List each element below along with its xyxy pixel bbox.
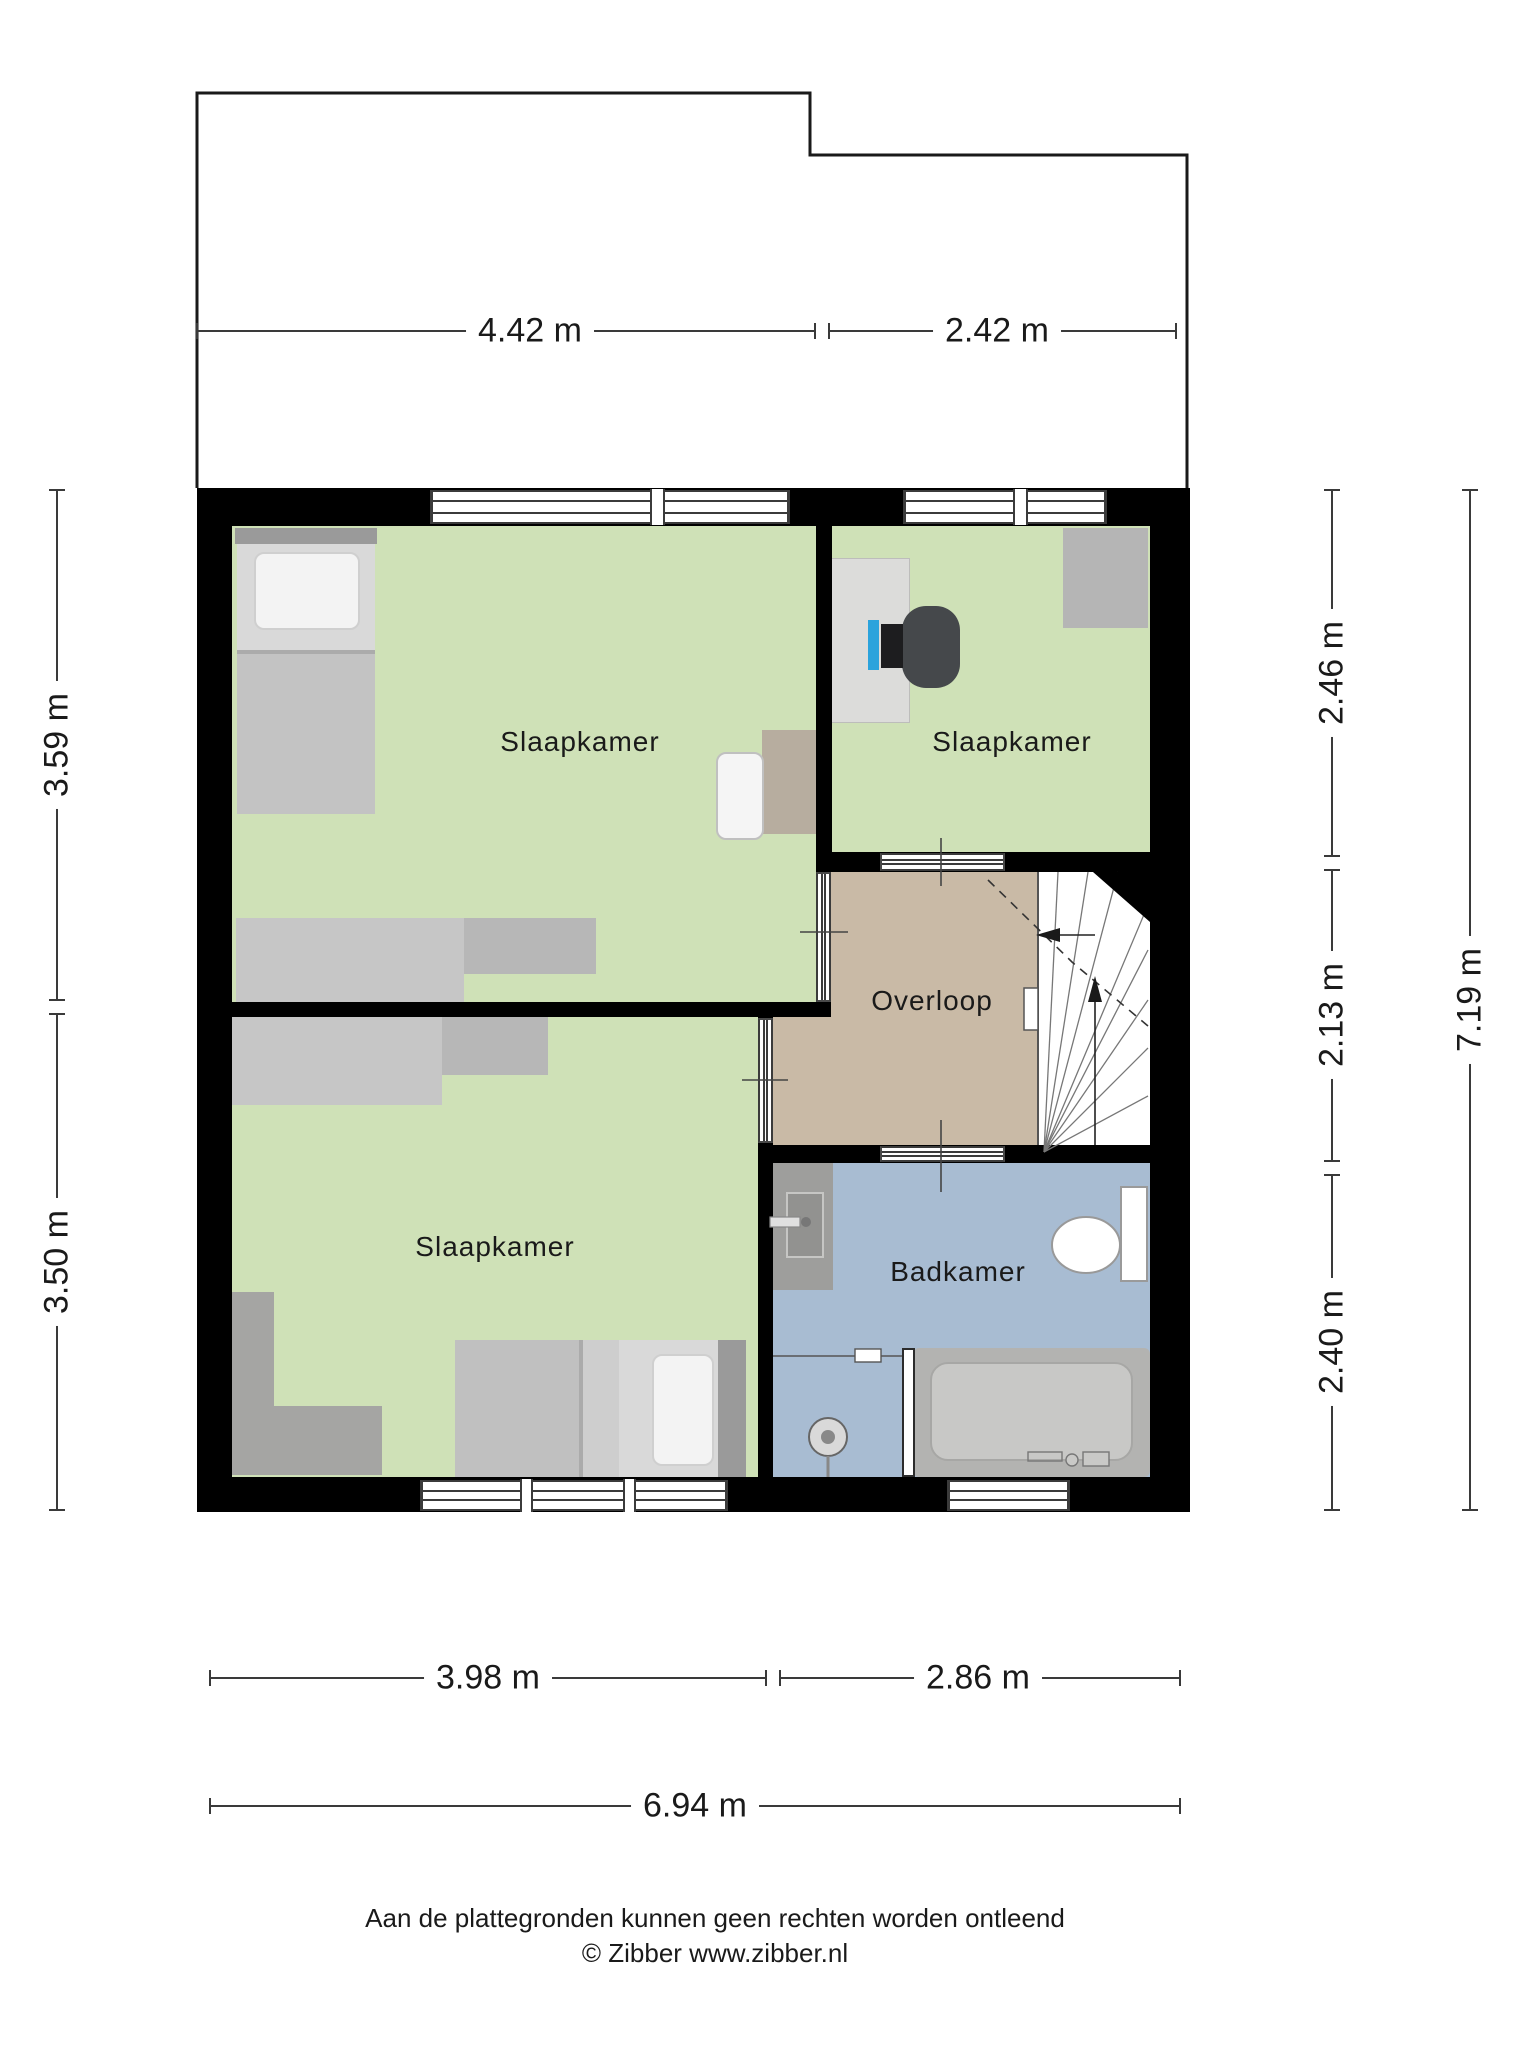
window (420, 1480, 728, 1511)
door-badkamer (880, 1146, 1005, 1162)
wall-bedroom-divider (816, 526, 832, 872)
bed-sheet-fold (583, 1340, 619, 1477)
dim-right-total: 7.19 m (1451, 936, 1490, 1064)
stairwell-floor (1038, 872, 1150, 1145)
room-label-slaapkamer-bottom: Slaapkamer (415, 1231, 574, 1263)
room-label-slaapkamer-top-left: Slaapkamer (500, 726, 659, 758)
dim-left-lower: 3.50 m (38, 1198, 77, 1326)
sink-basin (786, 1192, 824, 1258)
bed-duvet (237, 650, 375, 814)
wardrobe (232, 1017, 442, 1105)
credit-text: © Zibber www.zibber.nl (582, 1938, 848, 1969)
window-mullion (650, 489, 665, 525)
wall-outer-left (197, 488, 232, 1512)
wardrobe (442, 1017, 548, 1075)
chair (716, 752, 764, 840)
bed-duvet (455, 1340, 583, 1477)
office-chair (902, 606, 960, 688)
wardrobe (1063, 528, 1148, 628)
door-bedroom2 (880, 853, 1005, 871)
dim-bottom-right: 2.86 m (914, 1659, 1042, 1698)
window (903, 490, 1107, 524)
dim-right-1: 2.46 m (1313, 609, 1352, 737)
bed-headboard (718, 1340, 746, 1477)
dim-left-upper: 3.59 m (38, 681, 77, 809)
roof-outline (197, 93, 1187, 488)
window (947, 1480, 1070, 1511)
bathtub-inner (930, 1362, 1133, 1461)
room-label-badkamer: Badkamer (890, 1256, 1026, 1288)
dim-right-2: 2.13 m (1313, 951, 1352, 1079)
dim-top-right: 2.42 m (933, 312, 1061, 351)
floor-plan-canvas: Slaapkamer Slaapkamer Overloop Slaapkame… (0, 0, 1536, 2048)
door-bedroom3 (758, 1018, 773, 1143)
desk (762, 730, 816, 834)
monitor-icon (868, 620, 879, 670)
wall-outer-right (1150, 488, 1190, 1512)
dim-top-left: 4.42 m (466, 312, 594, 351)
dim-bottom-left: 3.98 m (424, 1659, 552, 1698)
monitor-screen (881, 624, 903, 668)
window-mullion (520, 1479, 533, 1512)
shower-screen (902, 1348, 915, 1477)
dim-bottom-total: 6.94 m (631, 1787, 759, 1826)
disclaimer-text: Aan de plattegronden kunnen geen rechten… (365, 1903, 1065, 1934)
bed-pillow (254, 552, 360, 630)
room-label-slaapkamer-top-right: Slaapkamer (932, 726, 1091, 758)
bed-headboard (235, 528, 377, 544)
window (430, 490, 790, 524)
room-label-overloop: Overloop (871, 985, 993, 1017)
wardrobe (236, 918, 464, 1002)
window-mullion (623, 1479, 636, 1512)
bed-pillow (652, 1354, 714, 1466)
dim-right-3: 2.40 m (1313, 1278, 1352, 1406)
window-mullion (1013, 489, 1028, 525)
wall-bedroom1-bottom (232, 1002, 831, 1017)
corner-desk (232, 1292, 274, 1408)
toilet-cistern (1120, 1186, 1148, 1282)
door-bedroom1 (816, 872, 831, 1002)
corner-desk (232, 1406, 382, 1475)
wardrobe (464, 918, 596, 974)
room-floor-overloop-lower (773, 1017, 831, 1145)
